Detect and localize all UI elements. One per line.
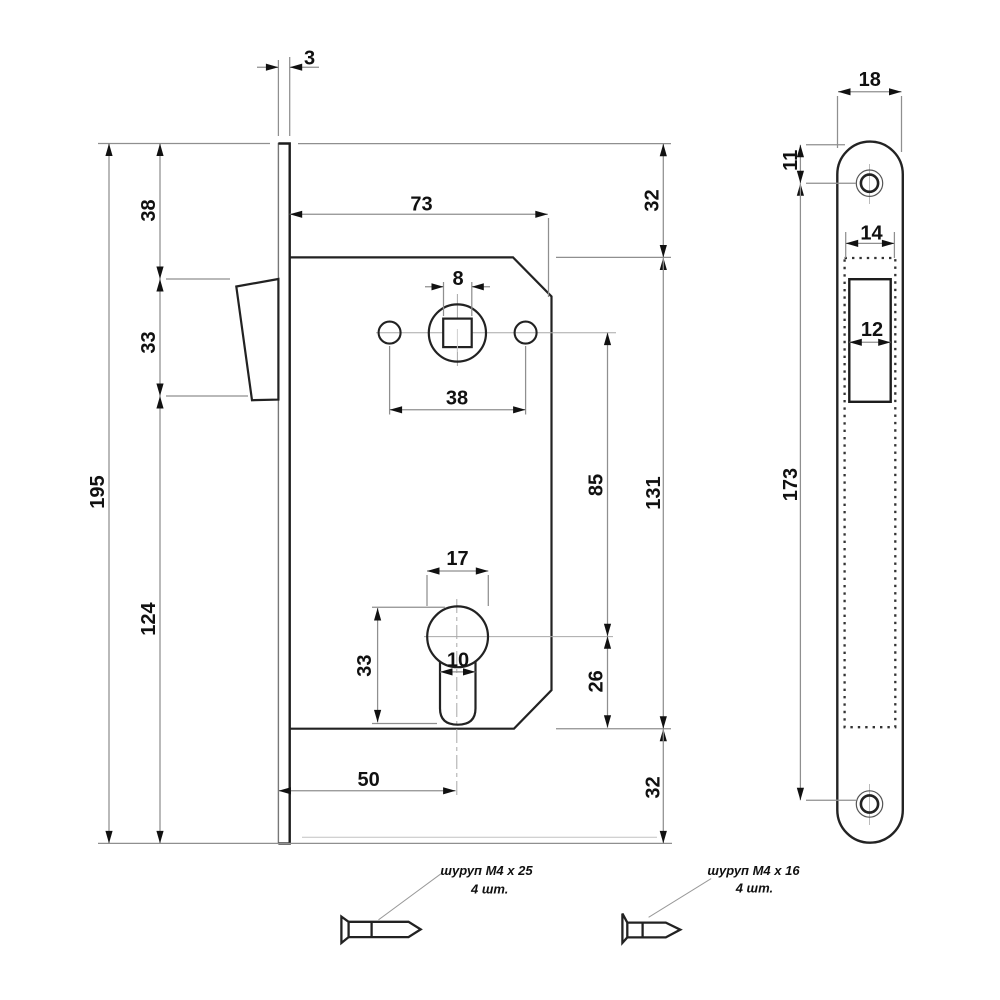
svg-text:85: 85 [586, 474, 608, 496]
svg-text:33: 33 [138, 331, 160, 353]
svg-text:50: 50 [357, 769, 379, 791]
svg-text:17: 17 [446, 548, 468, 570]
svg-text:131: 131 [643, 476, 665, 509]
svg-text:173: 173 [780, 468, 802, 501]
svg-text:шуруп М4 х 16: шуруп М4 х 16 [707, 863, 800, 878]
svg-text:12: 12 [861, 319, 883, 341]
svg-text:14: 14 [860, 223, 883, 245]
svg-text:4 шт.: 4 шт. [470, 881, 508, 896]
svg-text:10: 10 [447, 650, 469, 672]
svg-text:11: 11 [780, 150, 802, 171]
svg-text:18: 18 [859, 69, 881, 91]
svg-text:33: 33 [354, 654, 376, 676]
svg-text:38: 38 [446, 388, 468, 410]
svg-text:8: 8 [452, 268, 463, 290]
svg-text:38: 38 [138, 199, 160, 221]
svg-text:195: 195 [87, 475, 109, 508]
svg-text:26: 26 [586, 670, 608, 692]
svg-text:73: 73 [410, 194, 432, 216]
svg-text:32: 32 [643, 776, 665, 798]
svg-text:124: 124 [138, 601, 160, 635]
svg-text:3: 3 [304, 48, 315, 70]
svg-text:шуруп М4 х 25: шуруп М4 х 25 [440, 863, 533, 878]
svg-text:32: 32 [642, 189, 664, 211]
svg-text:4 шт.: 4 шт. [735, 881, 773, 896]
